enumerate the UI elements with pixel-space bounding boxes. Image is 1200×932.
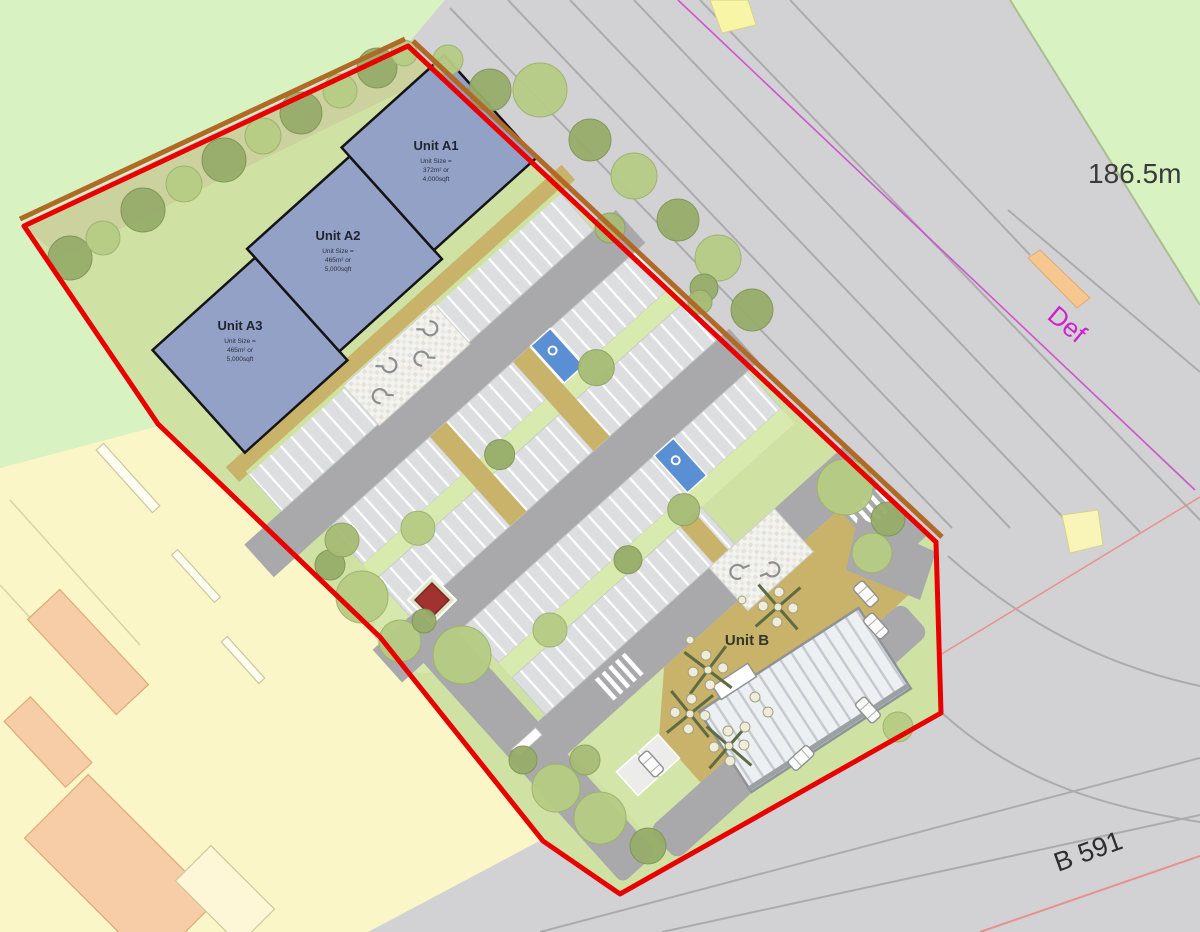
building-yellow-right [1062, 510, 1103, 553]
svg-text:Unit Size =: Unit Size = [420, 158, 452, 165]
svg-text:465m² or: 465m² or [227, 347, 254, 354]
svg-text:4,000sqft: 4,000sqft [423, 176, 450, 183]
svg-text:465m² or: 465m² or [325, 257, 352, 264]
svg-text:Unit A1: Unit A1 [413, 138, 458, 153]
svg-text:372m² or: 372m² or [423, 167, 450, 174]
site-plan-page: Unit A1 Unit Size = 372m² or 4,000sqft U… [0, 0, 1200, 932]
svg-text:Unit A3: Unit A3 [217, 318, 262, 333]
svg-text:Unit Size =: Unit Size = [224, 338, 256, 345]
site-plan-drawing: Unit A1 Unit Size = 372m² or 4,000sqft U… [0, 0, 1200, 932]
spot-height-label: 186.5m [1088, 158, 1181, 189]
svg-text:Unit A2: Unit A2 [315, 228, 360, 243]
svg-text:5,000sqft: 5,000sqft [325, 266, 352, 273]
svg-text:Unit Size =: Unit Size = [322, 248, 354, 255]
svg-text:5,000sqft: 5,000sqft [227, 356, 254, 363]
unit-b-label: Unit B [725, 632, 769, 649]
